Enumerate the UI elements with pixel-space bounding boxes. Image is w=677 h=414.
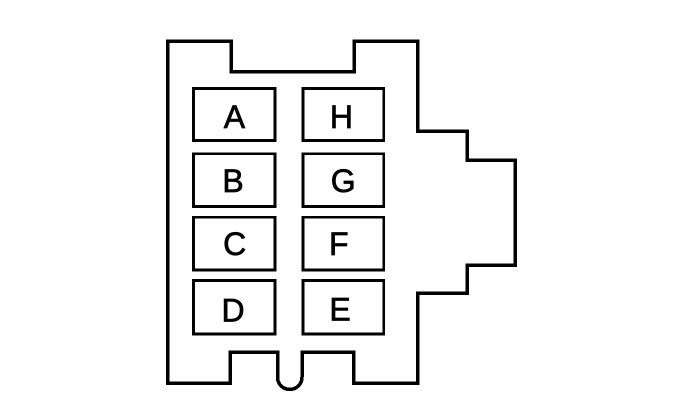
svg-text:E: E	[329, 291, 350, 327]
svg-text:B: B	[222, 163, 243, 199]
svg-text:G: G	[331, 163, 356, 199]
svg-text:H: H	[330, 99, 353, 135]
svg-text:A: A	[224, 99, 246, 135]
svg-text:C: C	[223, 226, 246, 262]
svg-text:D: D	[221, 292, 244, 328]
svg-text:F: F	[329, 226, 349, 262]
